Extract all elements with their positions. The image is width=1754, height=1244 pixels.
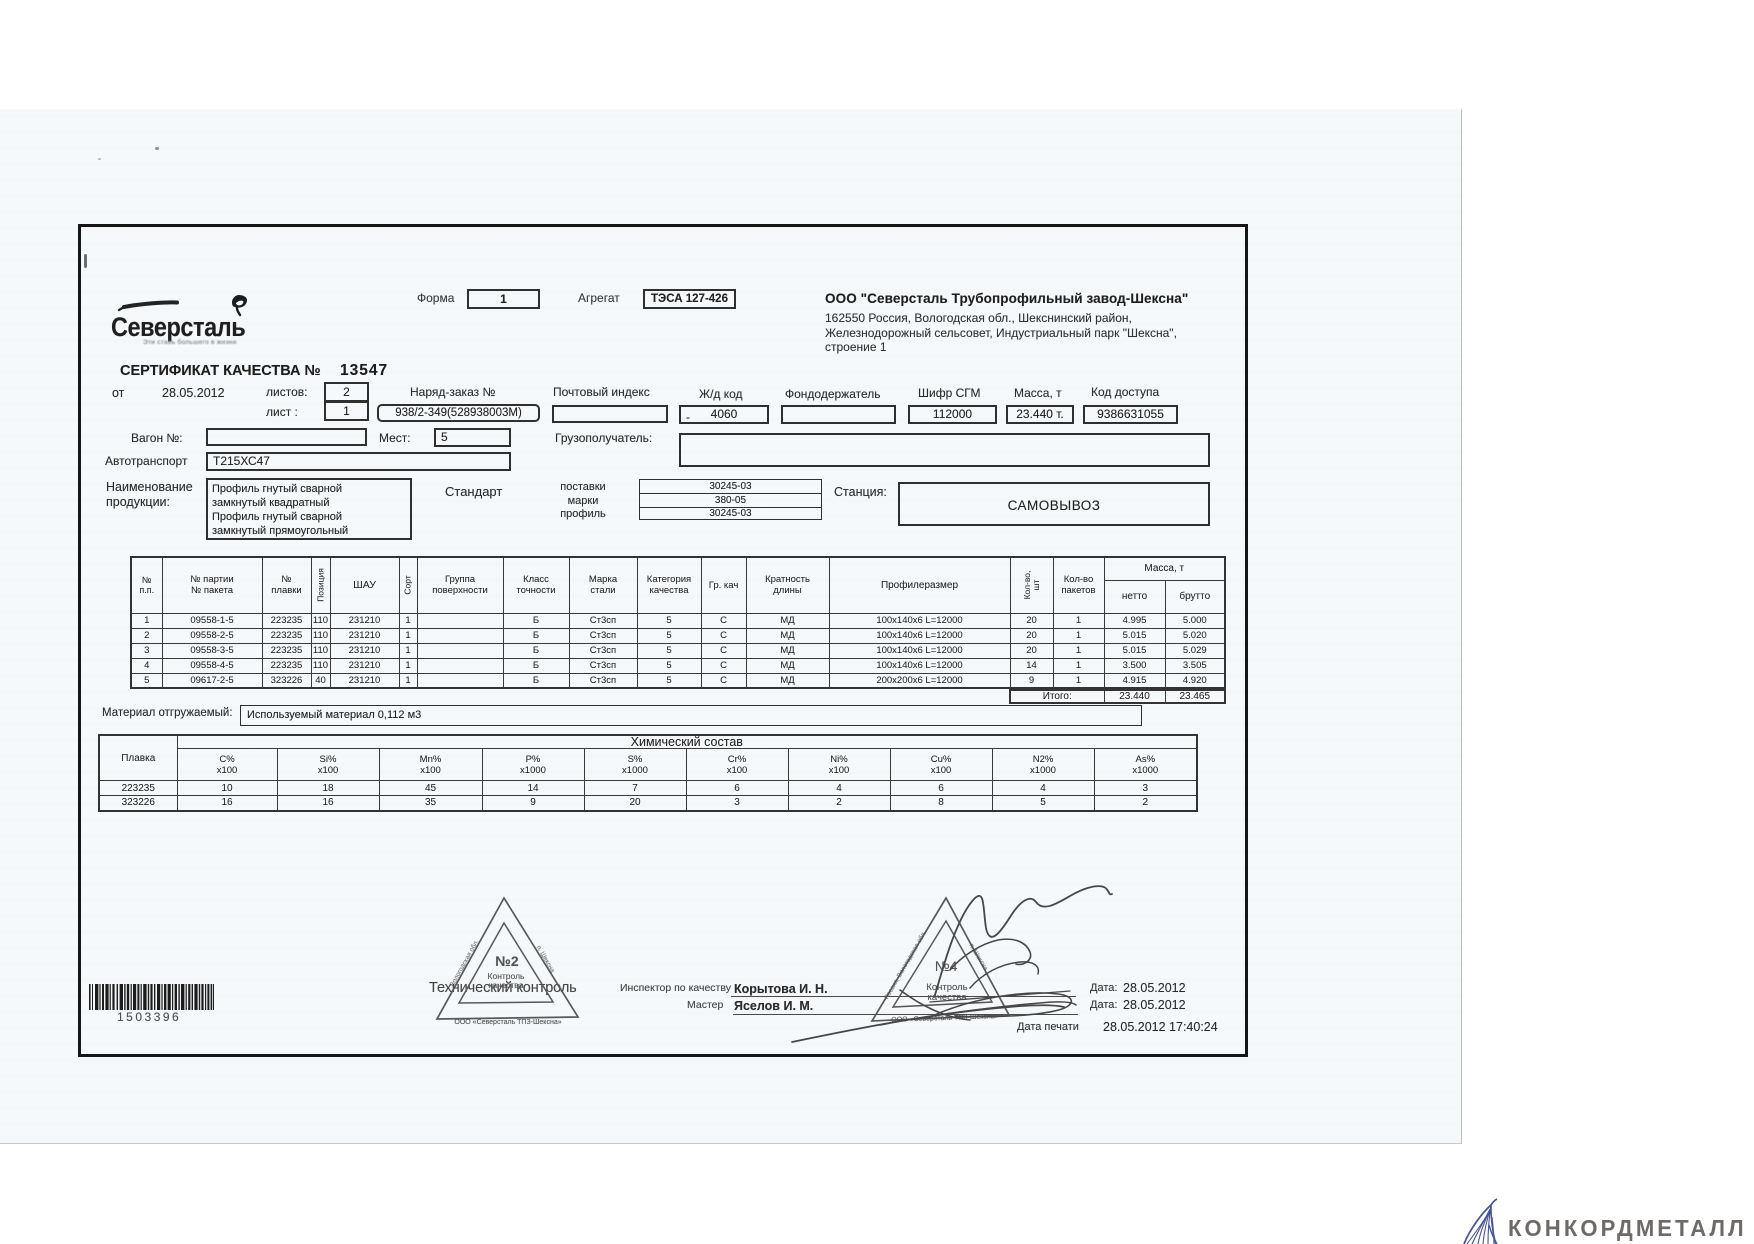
svg-text:№2: №2 xyxy=(495,953,519,969)
svg-text:ООО «Северсталь ТПЗ-Шексна»: ООО «Северсталь ТПЗ-Шексна» xyxy=(454,1019,561,1026)
svg-text:Вологодская обл.: Вологодская обл. xyxy=(448,938,481,988)
svg-text:качества: качества xyxy=(489,980,524,990)
svg-text:п. Шексна: п. Шексна xyxy=(535,944,556,974)
